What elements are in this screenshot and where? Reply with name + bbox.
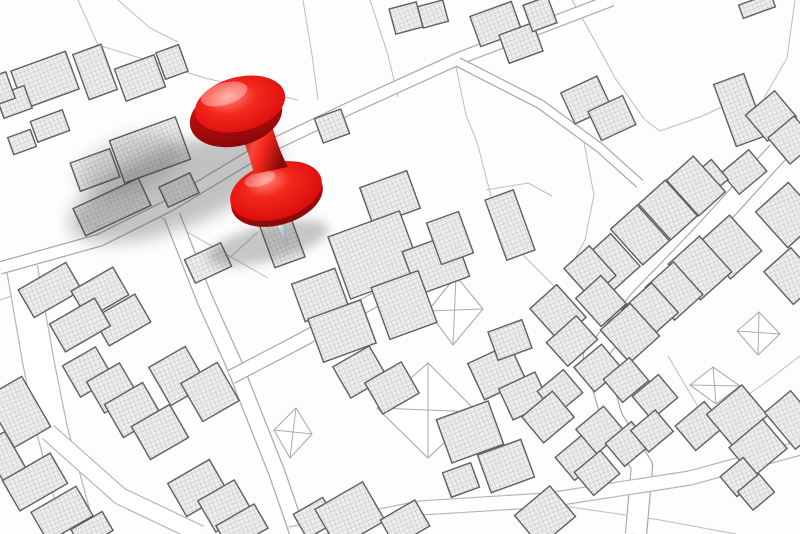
- map-svg: [0, 0, 800, 534]
- map-canvas: [0, 0, 800, 534]
- map-illustration: [0, 0, 800, 534]
